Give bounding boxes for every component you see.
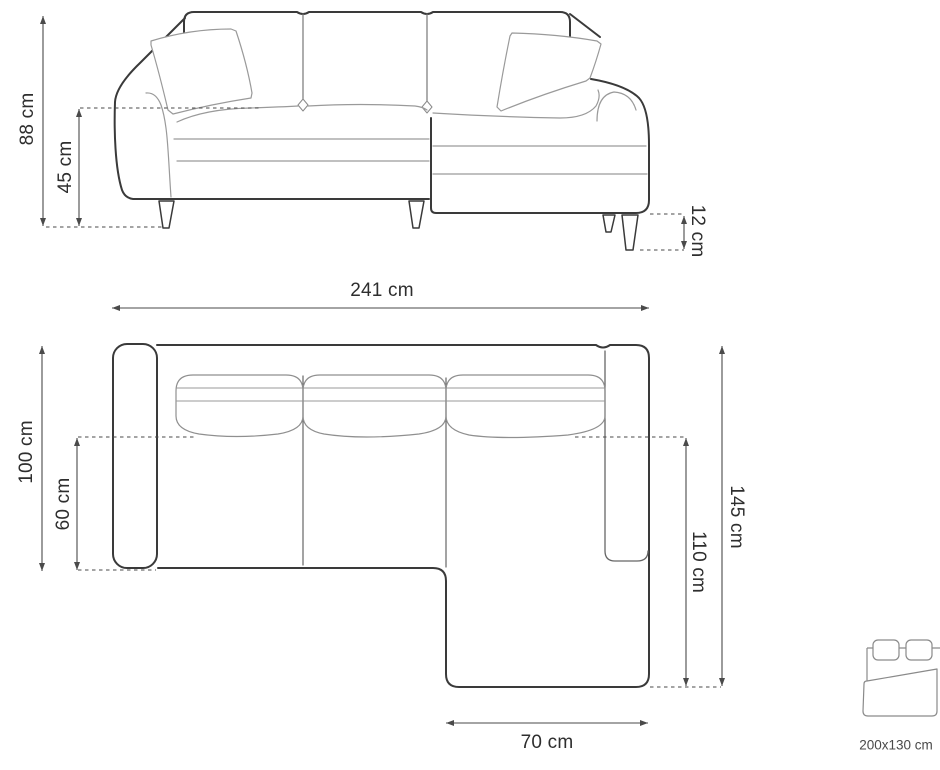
- top-seat-depth-label: 60 cm: [53, 478, 75, 531]
- seat-cushion-1: [176, 375, 303, 437]
- top-total-depth-label: 100 cm: [16, 420, 38, 484]
- front-total-height-label: 88 cm: [17, 93, 39, 146]
- front-leg-height-label: 12 cm: [686, 205, 708, 258]
- sofa-diagram-drawing: [0, 0, 940, 770]
- top-chaise-total-depth-label: 145 cm: [725, 485, 747, 549]
- seat-cushion-3: [446, 375, 605, 438]
- front-seat-height-label: 45 cm: [55, 141, 77, 194]
- sofa-top-view-drawing: [113, 344, 649, 687]
- bed-pillow-right: [906, 640, 932, 660]
- bed-mattress: [863, 669, 937, 716]
- sofa-front-view-drawing: [115, 12, 649, 250]
- right-pillow: [497, 33, 601, 111]
- right-armrest: [605, 351, 648, 561]
- bed-pillow-left: [873, 640, 899, 660]
- top-total-width-label: 241 cm: [350, 280, 414, 302]
- top-chaise-width-label: 70 cm: [521, 732, 574, 754]
- sofa-dimensions-diagram: 88 cm 45 cm 12 cm 241 cm 100 cm 60 cm 14…: [0, 0, 940, 770]
- top-chaise-extension-depth-label: 110 cm: [687, 531, 709, 593]
- left-pillow: [151, 29, 252, 114]
- sleeping-area-size-label: 200x130 cm: [859, 738, 933, 753]
- left-armrest: [113, 344, 157, 568]
- sofa-bed-icon: [863, 640, 940, 716]
- seat-cushion-2: [303, 375, 446, 437]
